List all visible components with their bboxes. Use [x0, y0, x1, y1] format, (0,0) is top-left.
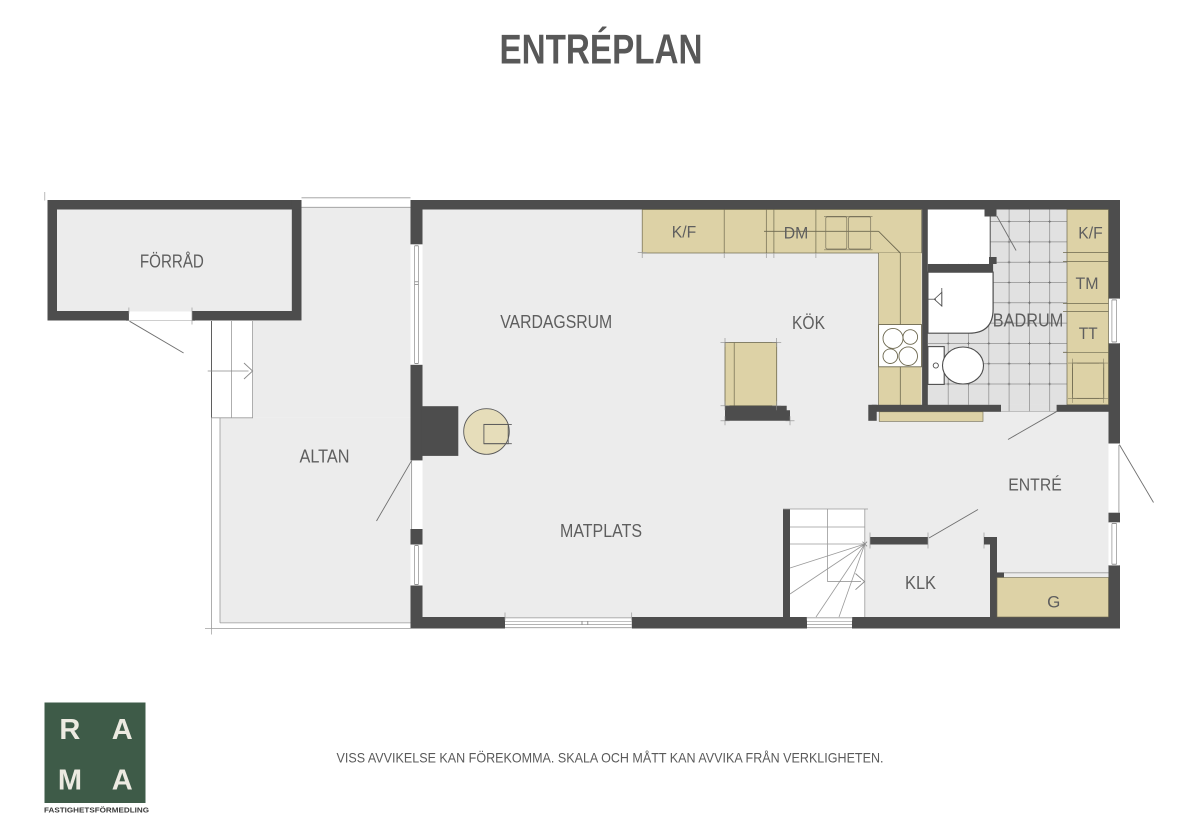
svg-text:FASTIGHETSFÖRMEDLING: FASTIGHETSFÖRMEDLING — [44, 806, 150, 815]
svg-text:A: A — [112, 765, 133, 797]
svg-text:FÖRRÅD: FÖRRÅD — [140, 250, 204, 271]
svg-text:A: A — [112, 714, 133, 746]
svg-text:G: G — [1047, 592, 1060, 611]
svg-text:KÖK: KÖK — [792, 312, 826, 333]
svg-text:ENTRÉPLAN: ENTRÉPLAN — [500, 26, 703, 73]
svg-text:ENTRÉ: ENTRÉ — [1008, 475, 1062, 495]
svg-text:BADRUM: BADRUM — [993, 309, 1064, 330]
svg-text:VISS AVVIKELSE KAN FÖREKOMMA.: VISS AVVIKELSE KAN FÖREKOMMA. SKALA OCH … — [337, 749, 884, 766]
svg-text:K/F: K/F — [672, 223, 696, 242]
svg-text:TM: TM — [1076, 274, 1099, 293]
svg-text:KLK: KLK — [905, 572, 937, 593]
svg-text:MATPLATS: MATPLATS — [560, 520, 642, 541]
svg-text:VARDAGSRUM: VARDAGSRUM — [500, 311, 612, 332]
svg-text:M: M — [58, 765, 82, 797]
svg-text:TT: TT — [1079, 324, 1098, 343]
svg-text:R: R — [59, 714, 80, 746]
svg-text:K/F: K/F — [1078, 223, 1102, 242]
svg-text:DM: DM — [784, 224, 809, 243]
svg-text:ALTAN: ALTAN — [300, 445, 350, 466]
